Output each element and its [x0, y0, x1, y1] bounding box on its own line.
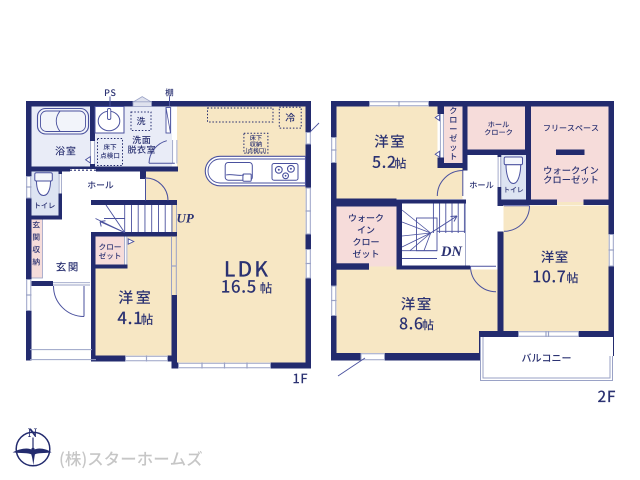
- svg-text:DN: DN: [440, 244, 462, 260]
- svg-text:UP: UP: [177, 211, 195, 226]
